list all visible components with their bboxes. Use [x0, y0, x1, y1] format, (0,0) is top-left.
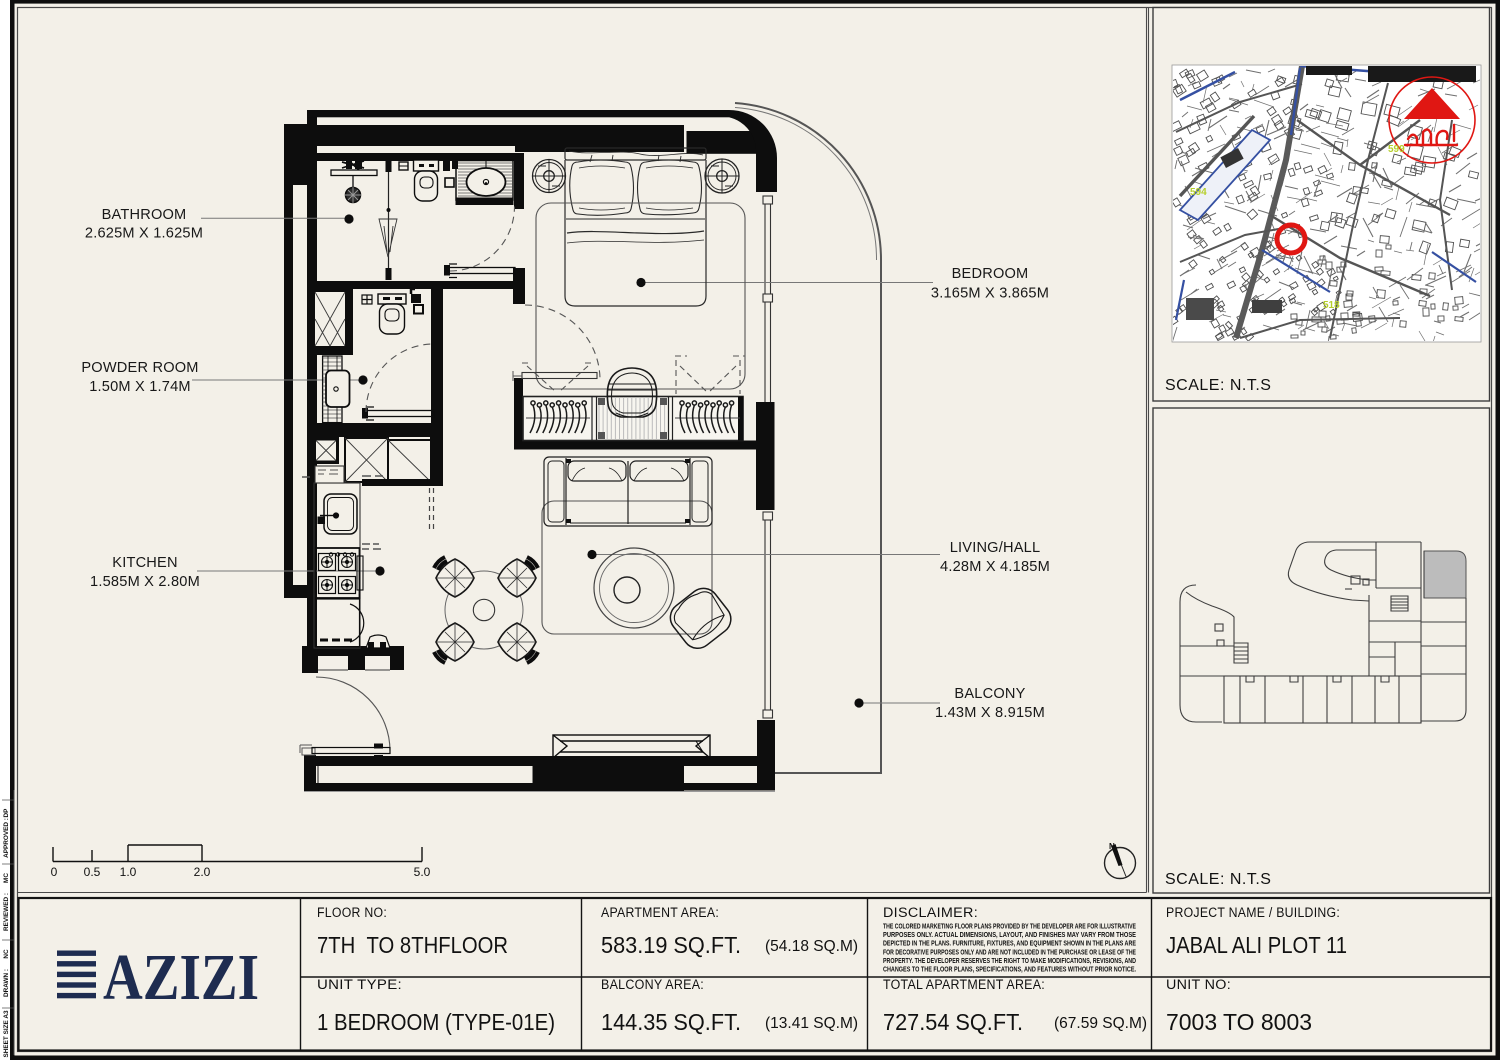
svg-text:N: N: [1109, 842, 1115, 851]
svg-text:2.625M X 1.625M: 2.625M X 1.625M: [85, 226, 203, 242]
svg-text:FLOOR NO:: FLOOR NO:: [317, 905, 387, 921]
svg-text:599: 599: [1388, 144, 1405, 155]
svg-text:(13.41 SQ.M): (13.41 SQ.M): [765, 1015, 858, 1032]
svg-text:(67.59 SQ.M): (67.59 SQ.M): [1054, 1015, 1147, 1032]
svg-text:BEDROOM: BEDROOM: [952, 266, 1029, 282]
svg-text:7003 TO 8003: 7003 TO 8003: [1166, 1009, 1312, 1035]
svg-text:BATHROOM: BATHROOM: [102, 207, 187, 223]
svg-text:DP: DP: [3, 808, 10, 818]
svg-text:PROJECT NAME / BUILDING:: PROJECT NAME / BUILDING:: [1166, 905, 1340, 921]
svg-text:MC: MC: [3, 873, 10, 883]
svg-text:NC: NC: [3, 949, 10, 959]
svg-text:1 BEDROOM (TYPE-01E): 1 BEDROOM (TYPE-01E): [317, 1009, 555, 1035]
svg-text:518: 518: [1323, 300, 1340, 311]
svg-text:REVIEWED :: REVIEWED :: [3, 893, 10, 931]
svg-text:5.0: 5.0: [414, 865, 431, 879]
svg-text:APARTMENT AREA:: APARTMENT AREA:: [601, 905, 719, 921]
svg-text:UNIT TYPE:: UNIT TYPE:: [317, 977, 402, 993]
svg-text:594: 594: [1190, 187, 1207, 198]
svg-text:AZIZI: AZIZI: [103, 941, 259, 1014]
svg-text:1.43M X 8.915M: 1.43M X 8.915M: [935, 705, 1045, 721]
svg-text:SHEET SIZE A3: SHEET SIZE A3: [3, 1010, 10, 1057]
svg-text:DISCLAIMER:: DISCLAIMER:: [883, 905, 978, 921]
svg-text:UNIT NO:: UNIT NO:: [1166, 977, 1231, 993]
svg-text:1.50M X 1.74M: 1.50M X 1.74M: [89, 379, 191, 395]
svg-text:TOTAL APARTMENT AREA:: TOTAL APARTMENT AREA:: [883, 977, 1045, 993]
svg-text:3.165M X 3.865M: 3.165M X 3.865M: [931, 286, 1049, 302]
svg-text:727.54 SQ.FT.: 727.54 SQ.FT.: [883, 1009, 1023, 1035]
svg-text:CHANGES TO THE FLOOR PLANS, SP: CHANGES TO THE FLOOR PLANS, SPECIFICATIO…: [883, 965, 1136, 974]
svg-text:SCALE: N.T.S: SCALE: N.T.S: [1165, 871, 1271, 888]
svg-text:POWDER ROOM: POWDER ROOM: [81, 360, 198, 376]
svg-text:(54.18 SQ.M): (54.18 SQ.M): [765, 938, 858, 955]
svg-text:583.19 SQ.FT.: 583.19 SQ.FT.: [601, 932, 741, 958]
svg-text:BALCONY: BALCONY: [954, 686, 1025, 702]
svg-text:1.585M X 2.80M: 1.585M X 2.80M: [90, 574, 200, 590]
svg-text:LIVING/HALL: LIVING/HALL: [950, 540, 1041, 556]
svg-text:144.35 SQ.FT.: 144.35 SQ.FT.: [601, 1009, 741, 1035]
svg-text:0: 0: [51, 865, 58, 879]
svg-text:BALCONY AREA:: BALCONY AREA:: [601, 977, 704, 993]
svg-text:APPROVED :: APPROVED :: [3, 818, 10, 858]
svg-text:DRAWN :: DRAWN :: [3, 969, 10, 997]
svg-text:0.5: 0.5: [84, 865, 101, 879]
svg-text:1.0: 1.0: [120, 865, 137, 879]
svg-text:7TH TO 8THFLOOR: 7TH TO 8THFLOOR: [317, 932, 508, 958]
svg-text:SCALE: N.T.S: SCALE: N.T.S: [1165, 377, 1271, 394]
svg-text:4.28M X 4.185M: 4.28M X 4.185M: [940, 559, 1050, 575]
svg-text:2.0: 2.0: [194, 865, 211, 879]
svg-text:KITCHEN: KITCHEN: [112, 555, 177, 571]
svg-text:JABAL ALI PLOT 11: JABAL ALI PLOT 11: [1166, 932, 1347, 958]
